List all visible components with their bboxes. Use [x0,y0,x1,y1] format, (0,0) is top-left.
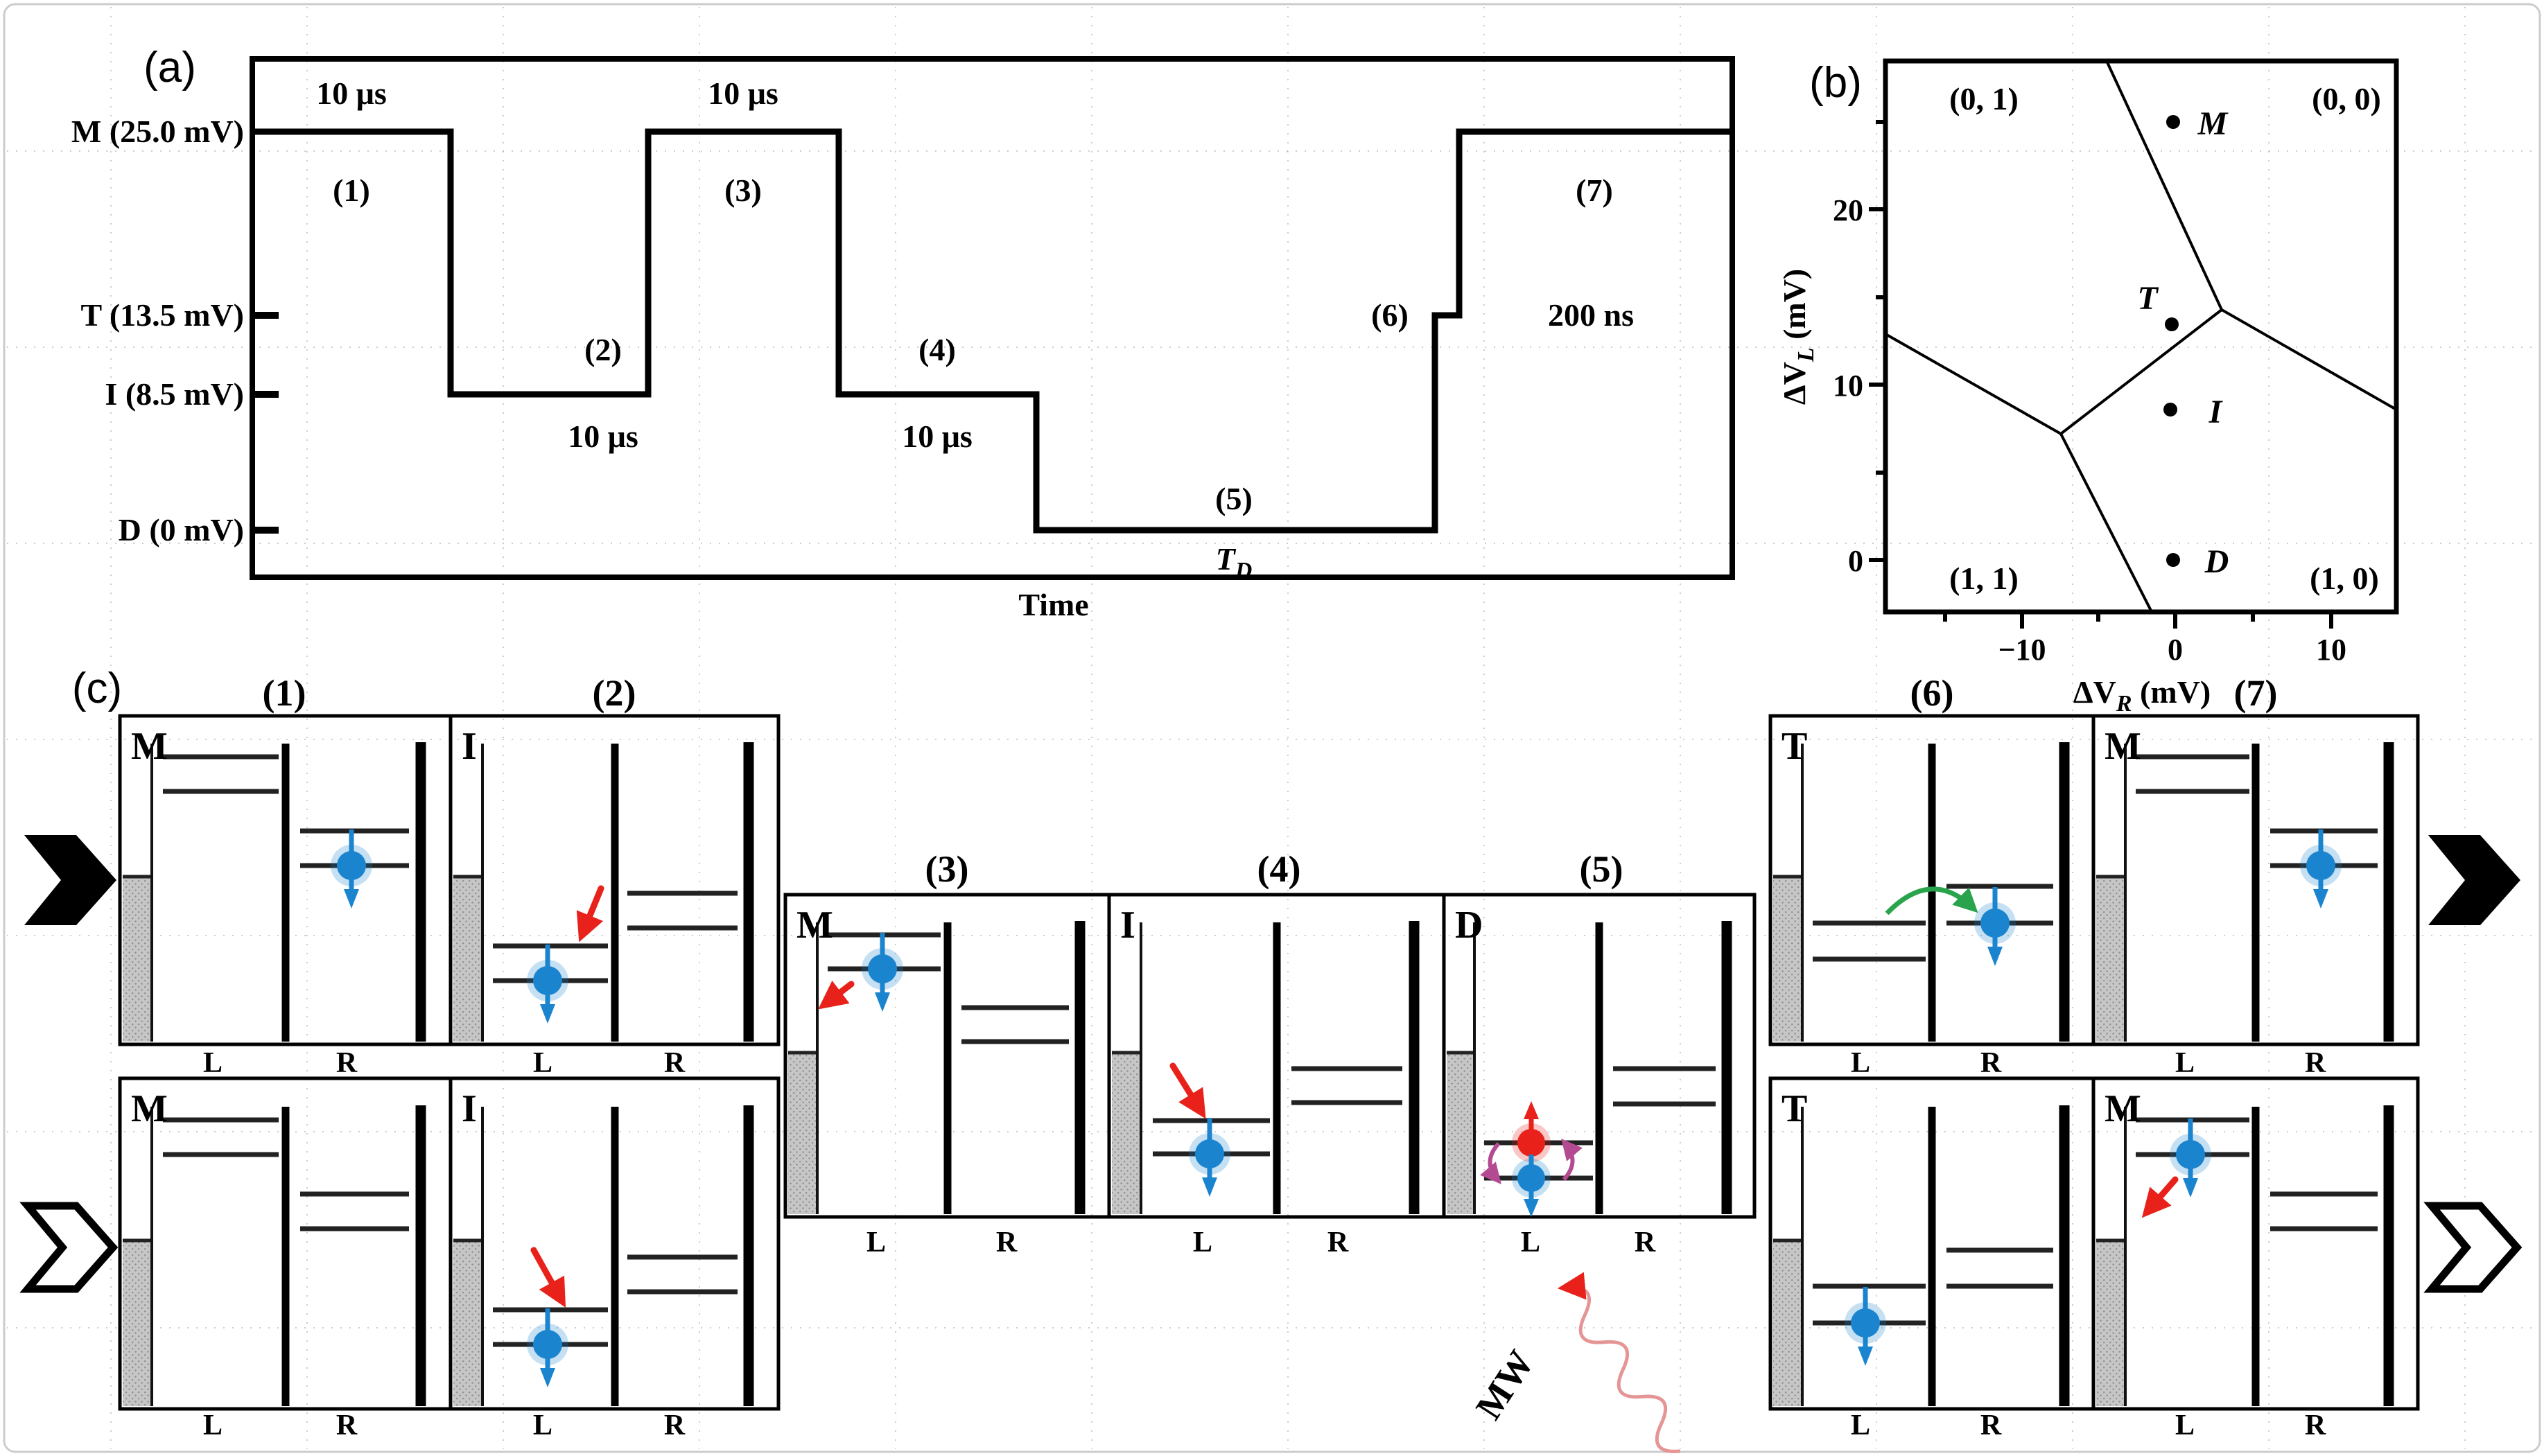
point-D-label: D [2204,543,2229,580]
stage-5: (5) [1215,481,1253,516]
point-M-label: M [2197,105,2229,142]
panel-b-tag: (b) [1809,59,1862,107]
figure: (a) M (25.0 mV) T (13.5 mV) I (8.5 mV) D… [0,0,2544,1456]
panel-c-tag: (c) [72,665,122,712]
R-label: R [2305,1047,2326,1079]
reservoir-fill [1112,1053,1140,1214]
x-tick-10: 10 [2316,633,2346,667]
stage-1: (1) [333,173,370,208]
L-label: L [1851,1410,1870,1441]
header-stage-7: (7) [2234,672,2278,714]
L-label: L [203,1047,223,1079]
duration-stage3: 10 μs [708,76,778,111]
header-stage-6: (6) [1910,672,1954,714]
diagram-mid-stage5-D: D [1444,895,1754,1217]
x-tick-0: 0 [2168,633,2183,667]
point-T-label: T [2137,280,2159,317]
stage-point-letter: I [1120,904,1135,947]
duration-stage2: 10 μs [568,419,638,454]
stage-point-letter: M [131,1087,168,1130]
point-M [2166,115,2180,129]
R-label: R [2305,1410,2326,1441]
L-label: L [1193,1227,1212,1258]
diagram-bottom-stage7-M: M [2093,1078,2418,1409]
reservoir-fill [453,877,481,1042]
reservoir-fill [788,1053,816,1214]
y-tick-0: 0 [1848,544,1863,578]
L-label: L [2175,1047,2195,1079]
time-axis-label: Time [1018,587,1088,622]
stage-point-letter: D [1455,904,1483,947]
figure-canvas: (a) M (25.0 mV) T (13.5 mV) I (8.5 mV) D… [0,0,2544,1456]
diagram-bottom-stage1-M: M [120,1078,451,1409]
panel-a-tag: (a) [143,44,196,91]
L-label: L [533,1410,552,1441]
header-stage-4: (4) [1257,848,1301,890]
header-stage-2: (2) [593,672,636,714]
header-stage-3: (3) [925,848,969,890]
R-label: R [664,1410,686,1441]
reservoir-fill [2096,1240,2124,1406]
diagram-mid-stage3-M: M [785,895,1109,1217]
L-label: L [866,1227,886,1258]
L-label: L [533,1047,552,1079]
R-label: R [664,1047,686,1079]
duration-stage4: 10 μs [902,419,972,454]
duration-stage7: 200 ns [1548,297,1634,333]
reservoir-fill [2096,877,2124,1042]
R-label: R [336,1410,358,1441]
diagram-top-stage2-I: I [451,716,778,1044]
stage-point-letter: I [462,1087,477,1130]
diagram-mid-stage4-I: I [1109,895,1444,1217]
diagram-top-stage1-M: M [120,716,451,1044]
stage-6: (6) [1371,297,1409,333]
diagram-bottom-stage2-I: I [451,1078,778,1409]
stage-3: (3) [724,173,762,208]
reservoir-fill [1773,877,1801,1042]
stage-point-letter: T [1781,725,1807,768]
stage-point-letter: T [1781,1087,1807,1130]
region-01: (0, 1) [1949,81,2019,116]
region-11: (1, 1) [1949,561,2019,596]
header-stage-1: (1) [263,672,306,714]
reservoir-fill [1773,1240,1801,1406]
diagram-top-stage7-M: M [2093,716,2418,1044]
stage-2: (2) [584,332,622,367]
y-tick-10: 10 [1833,369,1863,403]
L-label: L [1521,1227,1540,1258]
level-label-T: T (13.5 mV) [80,297,244,333]
reservoir-fill [453,1240,481,1406]
level-label-M: M (25.0 mV) [71,114,244,149]
region-00: (0, 0) [2312,81,2381,116]
point-I-label: I [2208,394,2224,430]
reservoir-fill [1447,1053,1474,1214]
R-label: R [1980,1047,2002,1079]
diagram-bottom-stage6-T: T [1770,1078,2093,1409]
stage-point-letter: M [2105,1087,2141,1130]
y-tick-20: 20 [1833,193,1863,227]
L-label: L [203,1410,223,1441]
point-D [2166,553,2180,567]
level-label-I: I (8.5 mV) [105,376,244,412]
x-tick-m10: −10 [1998,633,2046,667]
stage-4: (4) [918,332,956,367]
stage-point-letter: M [2105,725,2141,768]
L-label: L [1851,1047,1870,1079]
R-label: R [1980,1410,2002,1441]
reservoir-fill [123,877,150,1042]
R-label: R [996,1227,1018,1258]
R-label: R [336,1047,358,1079]
R-label: R [1327,1227,1349,1258]
duration-stage1: 10 μs [316,76,386,111]
diagram-top-stage6-T: T [1770,716,2093,1044]
reservoir-fill [123,1240,150,1406]
stage-point-letter: I [462,725,477,768]
L-label: L [2175,1410,2195,1441]
point-T [2165,317,2179,331]
R-label: R [1635,1227,1656,1258]
stage-point-letter: M [796,904,833,947]
point-I [2163,403,2177,416]
level-label-D: D (0 mV) [119,512,244,547]
stage-point-letter: M [131,725,168,768]
stage-7: (7) [1576,173,1613,208]
region-10: (1, 0) [2310,561,2379,596]
header-stage-5: (5) [1580,848,1623,890]
